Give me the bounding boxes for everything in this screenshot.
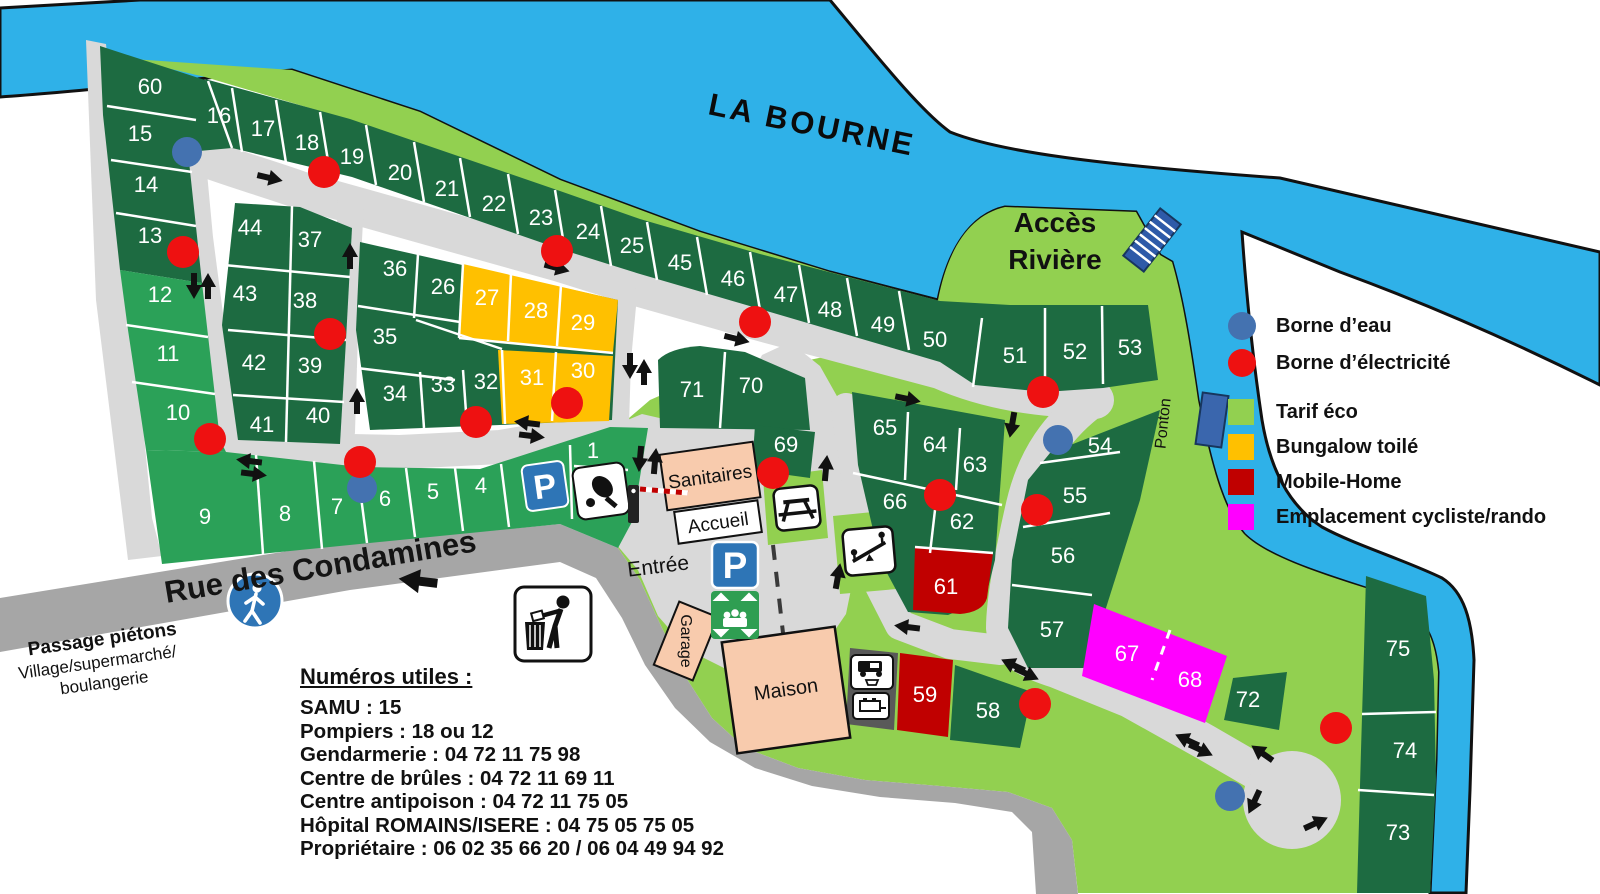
useful-numbers: Numéros utiles : SAMU : 15Pompiers : 18 … [300,664,720,861]
plot-35: 35 [373,324,397,349]
plot-65: 65 [873,415,897,440]
assembly-point-icon [711,591,759,639]
plot-48: 48 [818,297,842,322]
plot-38: 38 [293,288,317,313]
legend-item: Mobile-Home [1228,469,1588,495]
plot-49: 49 [871,312,895,337]
plot-41: 41 [250,412,274,437]
water-point-dot [1043,425,1073,455]
playground-icon [842,526,896,576]
electric-point-dot [739,306,771,338]
river-access-line1: Accès [1014,207,1097,238]
legend-item: Borne d’eau [1228,312,1588,340]
plot-71: 71 [680,377,704,402]
legend-swatch-square [1228,469,1254,495]
plot-73: 73 [1386,820,1410,845]
picnic-table-icon [773,485,821,531]
electric-point-dot [1027,376,1059,408]
plot-31: 31 [520,365,544,390]
plot-7: 7 [331,494,343,519]
plot-62: 62 [950,509,974,534]
electric-point-dot [344,446,376,478]
electric-point-dot [1021,494,1053,526]
plot-64: 64 [923,432,947,457]
plot-44: 44 [238,215,262,240]
legend-swatch-circle [1228,349,1256,377]
plot-58: 58 [976,698,1000,723]
plot-12: 12 [148,282,172,307]
legend-label: Tarif éco [1276,401,1358,424]
plot-14: 14 [134,172,158,197]
plot-39: 39 [298,353,322,378]
legend-swatch-square [1228,399,1254,425]
plot-42: 42 [242,350,266,375]
plot-21: 21 [435,176,459,201]
plot-75: 75 [1386,636,1410,661]
legend-label: Borne d’eau [1276,315,1392,338]
plot-30: 30 [571,358,595,383]
electric-point-dot [194,423,226,455]
phone-line: Propriétaire : 06 02 35 66 20 / 06 04 49… [300,837,720,861]
plot-40: 40 [306,403,330,428]
plot-53: 53 [1118,335,1142,360]
plot-37: 37 [298,227,322,252]
plot-4: 4 [475,473,487,498]
plot-32: 32 [474,369,498,394]
plot-51: 51 [1003,343,1027,368]
electric-point-dot [1019,688,1051,720]
plot-10: 10 [166,400,190,425]
plot-25: 25 [620,233,644,258]
plot-63: 63 [963,452,987,477]
plot-23: 23 [529,205,553,230]
plot-9: 9 [199,504,211,529]
legend-item: Emplacement cycliste/rando [1228,504,1588,530]
table-tennis-icon [572,462,631,521]
plot-33: 33 [431,372,455,397]
legend-item: Bungalow toilé [1228,434,1588,460]
plot-8: 8 [279,501,291,526]
electric-hookup-icon [853,693,889,719]
phone-line: Gendarmerie : 04 72 11 75 98 [300,743,720,767]
campsite-map: Sanitaires Accueil Garage Maison P [0,0,1600,894]
plot-57: 57 [1040,617,1064,642]
plot-70: 70 [739,373,763,398]
electric-point-dot [541,235,573,267]
parking-icon: P [521,460,569,511]
plot-61: 61 [934,574,958,599]
plot-56: 56 [1051,543,1075,568]
phone-line: Centre antipoison : 04 72 11 75 05 [300,790,720,814]
plot-28: 28 [524,298,548,323]
plot-59: 59 [913,682,937,707]
plot-36: 36 [383,256,407,281]
plot-34: 34 [383,381,407,406]
plot-1: 1 [587,438,599,463]
plot-54: 54 [1088,433,1112,458]
legend-label: Emplacement cycliste/rando [1276,506,1546,529]
river-access-line2: Rivière [1008,244,1101,275]
plot-22: 22 [482,191,506,216]
legend-swatch-circle [1228,312,1256,340]
plot-29: 29 [571,310,595,335]
plot-52: 52 [1063,339,1087,364]
electric-point-dot [308,156,340,188]
electric-point-dot [314,318,346,350]
water-point-dot [1215,781,1245,811]
plot-69: 69 [774,432,798,457]
plot-74: 74 [1393,738,1417,763]
plot-6: 6 [379,486,391,511]
plot-5: 5 [427,479,439,504]
parking-icon-2: P [712,542,758,588]
plot-45: 45 [668,250,692,275]
plot-68: 68 [1178,667,1202,692]
plot-19: 19 [340,144,364,169]
legend-label: Bungalow toilé [1276,436,1418,459]
garage-label: Garage [677,614,694,667]
phone-line: Hôpital ROMAINS/ISERE : 04 75 05 75 05 [300,814,720,838]
plot-66: 66 [883,489,907,514]
plot-18: 18 [295,130,319,155]
plot-17: 17 [251,116,275,141]
water-point-dot [172,137,202,167]
electric-point-dot [460,406,492,438]
plot-26: 26 [431,274,455,299]
plot-15: 15 [128,121,152,146]
plot-72: 72 [1236,687,1260,712]
plot-55: 55 [1063,483,1087,508]
plot-46: 46 [721,266,745,291]
trash-icon [515,587,591,661]
electric-point-dot [1320,712,1352,744]
legend-item: Tarif éco [1228,399,1588,425]
plot-60: 60 [138,74,162,99]
plot-47: 47 [774,282,798,307]
plot-20: 20 [388,160,412,185]
phone-line: SAMU : 15 [300,696,720,720]
phone-line: Centre de brûles : 04 72 11 69 11 [300,767,720,791]
plot-67: 67 [1115,641,1139,666]
electric-point-dot [924,479,956,511]
legend-swatch-square [1228,434,1254,460]
plot-43: 43 [233,281,257,306]
legend-label: Mobile-Home [1276,471,1402,494]
legend: Borne d’eauBorne d’électricitéTarif écoB… [1228,312,1588,539]
legend-item: Borne d’électricité [1228,349,1588,377]
plot-24: 24 [576,219,600,244]
plot-50: 50 [923,327,947,352]
plot-27: 27 [475,285,499,310]
electric-point-dot [551,387,583,419]
plot-11: 11 [157,341,180,366]
plot-block-75-73 [1357,576,1436,893]
plot-16: 16 [207,103,231,128]
plot-13: 13 [138,223,162,248]
useful-numbers-title: Numéros utiles : [300,664,720,690]
electric-point-dot [757,457,789,489]
legend-label: Borne d’électricité [1276,352,1451,375]
phone-line: Pompiers : 18 ou 12 [300,720,720,744]
svg-text:P: P [723,545,748,586]
camper-service-icon [851,655,893,689]
electric-point-dot [167,236,199,268]
legend-swatch-square [1228,504,1254,530]
